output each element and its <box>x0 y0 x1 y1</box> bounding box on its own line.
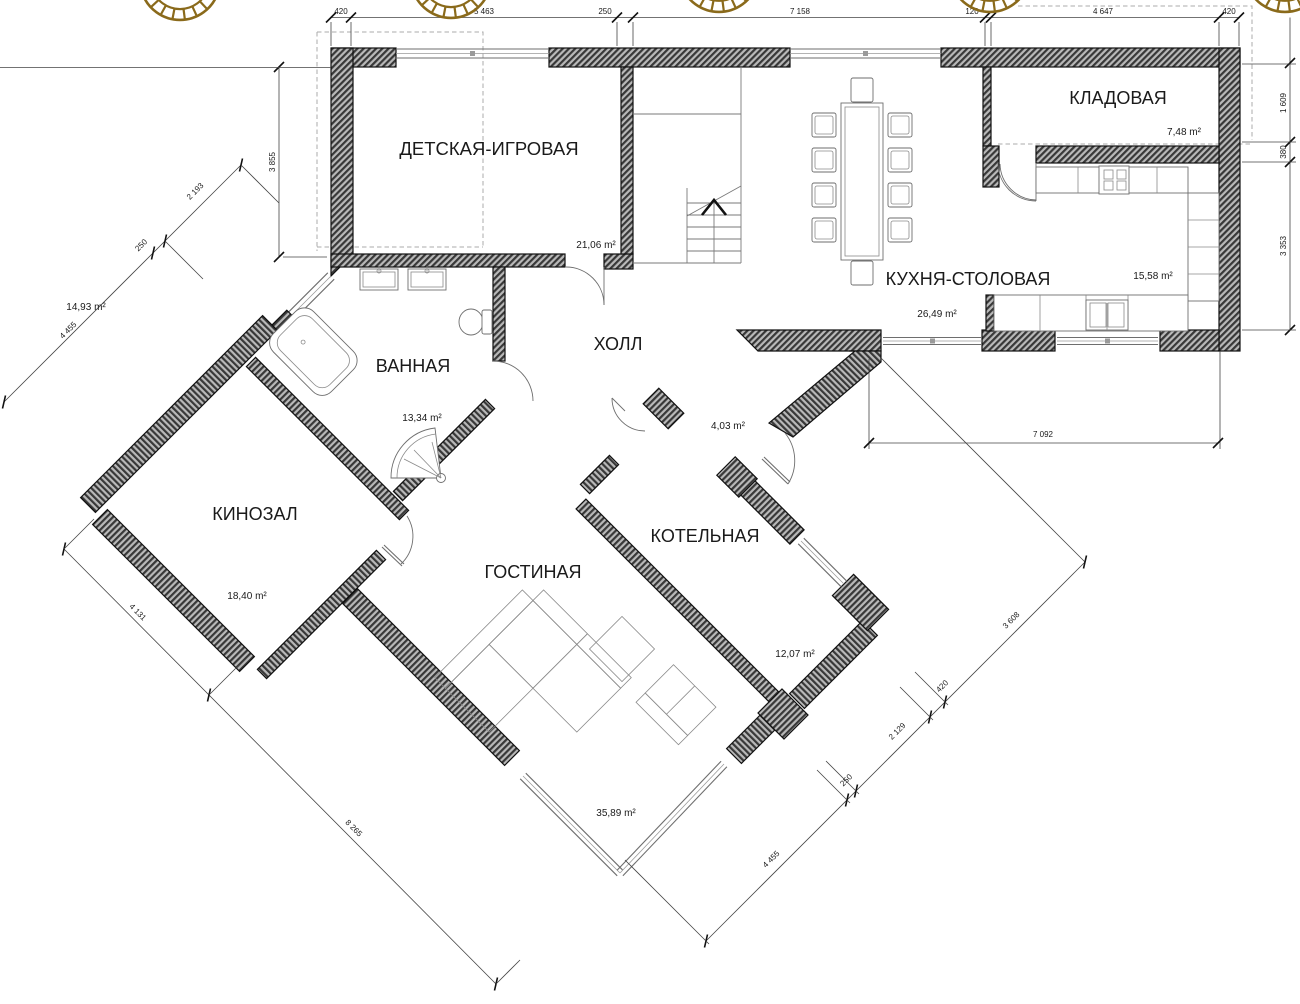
svg-text:4 647: 4 647 <box>1093 7 1114 16</box>
svg-text:21,06 m²: 21,06 m² <box>576 240 616 251</box>
svg-text:380: 380 <box>1279 145 1288 159</box>
svg-text:18,40 m²: 18,40 m² <box>227 591 267 602</box>
svg-text:15,58 m²: 15,58 m² <box>1133 271 1173 282</box>
svg-text:13,34 m²: 13,34 m² <box>402 413 442 424</box>
svg-text:3 855: 3 855 <box>268 151 277 172</box>
svg-text:КОТЕЛЬНАЯ: КОТЕЛЬНАЯ <box>651 526 760 546</box>
svg-text:420: 420 <box>334 7 348 16</box>
svg-text:7,48 m²: 7,48 m² <box>1167 127 1202 138</box>
svg-text:КЛАДОВАЯ: КЛАДОВАЯ <box>1069 88 1167 108</box>
svg-text:7 092: 7 092 <box>1033 430 1054 439</box>
svg-text:3 353: 3 353 <box>1279 235 1288 256</box>
svg-text:1 609: 1 609 <box>1279 92 1288 113</box>
svg-text:12,07 m²: 12,07 m² <box>775 649 815 660</box>
svg-text:ГОСТИНАЯ: ГОСТИНАЯ <box>484 562 581 582</box>
svg-text:7 158: 7 158 <box>790 7 811 16</box>
svg-text:ВАННАЯ: ВАННАЯ <box>376 356 450 376</box>
svg-text:35,89 m²: 35,89 m² <box>596 808 636 819</box>
svg-text:ХОЛЛ: ХОЛЛ <box>594 334 643 354</box>
svg-text:420: 420 <box>1222 7 1236 16</box>
svg-text:26,49 m²: 26,49 m² <box>917 309 957 320</box>
svg-text:14,93 m²: 14,93 m² <box>66 302 106 313</box>
svg-text:4,03 m²: 4,03 m² <box>711 421 746 432</box>
svg-text:ДЕТСКАЯ-ИГРОВАЯ: ДЕТСКАЯ-ИГРОВАЯ <box>399 138 578 159</box>
svg-text:КУХНЯ-СТОЛОВАЯ: КУХНЯ-СТОЛОВАЯ <box>886 269 1051 289</box>
svg-text:КИНОЗАЛ: КИНОЗАЛ <box>212 504 298 524</box>
svg-text:250: 250 <box>598 7 612 16</box>
